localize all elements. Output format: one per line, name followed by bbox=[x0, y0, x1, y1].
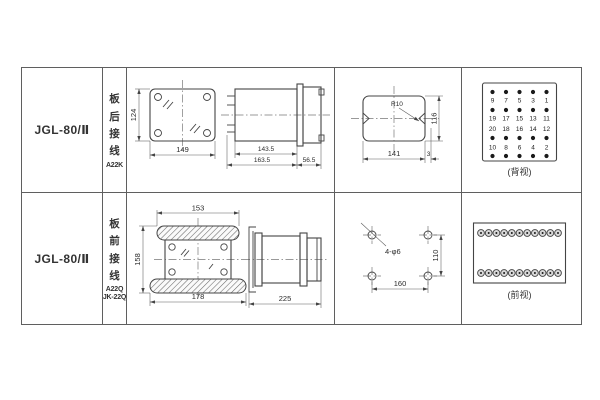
mount-hole bbox=[155, 130, 162, 137]
wiring-code: A22K bbox=[106, 162, 123, 169]
terminal-number: 12 bbox=[543, 126, 551, 133]
terminal-number: 2 bbox=[545, 145, 549, 152]
terminal-number: 19 bbox=[489, 116, 497, 123]
mount-view-drawing: 153 158 178 bbox=[133, 204, 246, 307]
dim-mount-width: 149 bbox=[176, 145, 189, 154]
mount-hole bbox=[204, 130, 211, 137]
terminal-number: 15 bbox=[516, 116, 524, 123]
terminal-number: 4 bbox=[531, 145, 535, 152]
dim-mount-height: 124 bbox=[129, 109, 138, 122]
terminal-number: 7 bbox=[504, 98, 508, 105]
model-label: JGL-80/Ⅱ bbox=[34, 252, 89, 266]
dimension-table: JGL-80/Ⅱ 板 后 接 线 A22K bbox=[21, 67, 582, 325]
dim-rear-depth: 56.5 bbox=[303, 157, 316, 164]
dim-hole-height: 110 bbox=[431, 250, 440, 262]
front-view-caption: (前视) bbox=[508, 289, 532, 300]
wiring-char: 线 bbox=[109, 143, 120, 160]
mount-hole bbox=[155, 94, 162, 101]
side-view-drawing: 225 bbox=[242, 227, 329, 308]
screw-row-bottom bbox=[478, 270, 562, 277]
screw-row-top bbox=[478, 230, 562, 237]
dim-height: 158 bbox=[133, 253, 142, 266]
hatch-mark bbox=[163, 100, 200, 133]
wiring-code: A22Q bbox=[106, 286, 124, 293]
mount-hole bbox=[169, 244, 175, 250]
wiring-char: 板 bbox=[109, 216, 120, 233]
wiring-char: 后 bbox=[109, 109, 120, 126]
mount-view-drawing: 124 149 bbox=[129, 80, 215, 159]
wiring-type-cell-row1: 板 后 接 线 A22K bbox=[103, 68, 127, 192]
wiring-char: 前 bbox=[109, 233, 120, 250]
terminal-number: 8 bbox=[504, 145, 508, 152]
main-drawings-cell-row2: 153 158 178 bbox=[127, 193, 335, 324]
terminal-number: 20 bbox=[489, 126, 497, 133]
terminal-strip-top bbox=[157, 226, 239, 240]
wiring-char: 线 bbox=[109, 268, 120, 285]
terminal-number: 10 bbox=[489, 145, 497, 152]
wiring-type-cell-row2: 板 前 接 线 A22Q JK-22Q bbox=[103, 193, 127, 324]
wiring-code: JK-22Q bbox=[103, 294, 126, 301]
terminal-number: 11 bbox=[543, 116, 550, 123]
side-view-drawing: 143.5 163.5 56.5 bbox=[221, 84, 330, 169]
model-cell-row2: JGL-80/Ⅱ bbox=[22, 193, 103, 324]
hatch-mark bbox=[181, 249, 213, 269]
terminal-front-view: (前视) bbox=[462, 193, 577, 324]
panel-cutout-drawing: R10 141 3 116 bbox=[335, 68, 462, 192]
dim-overall-depth: 163.5 bbox=[254, 157, 271, 164]
wiring-char: 板 bbox=[109, 91, 120, 108]
main-drawings-cell-row1: 124 149 bbox=[127, 68, 335, 192]
terminal-number: 14 bbox=[529, 126, 537, 133]
terminal-number: 3 bbox=[531, 98, 535, 105]
rear-view-cell: 9 7 5 3 1 19 17 15 13 11 20 18 16 14 12 bbox=[462, 68, 577, 192]
panel-cutout-cell-row1: R10 141 3 116 bbox=[335, 68, 462, 192]
dim-top-width: 153 bbox=[192, 204, 205, 213]
terminal-number: 16 bbox=[516, 126, 524, 133]
terminal-number: 18 bbox=[502, 126, 510, 133]
table-row-rear-wiring: JGL-80/Ⅱ 板 后 接 线 A22K bbox=[22, 68, 581, 193]
dim-overall-depth: 225 bbox=[279, 294, 292, 303]
terminal-number: 1 bbox=[545, 98, 549, 105]
front-view-cell: (前视) bbox=[462, 193, 577, 324]
dim-hole-spec: 4-φ6 bbox=[385, 247, 401, 256]
terminal-number: 17 bbox=[502, 116, 510, 123]
dim-hole-width: 160 bbox=[394, 279, 407, 288]
drill-plan-cell: 4-φ6 110 160 bbox=[335, 193, 462, 324]
terminal-number: 13 bbox=[529, 116, 537, 123]
table-row-front-wiring: JGL-80/Ⅱ 板 前 接 线 A22Q JK-22Q bbox=[22, 193, 581, 324]
terminal-rear-view: 9 7 5 3 1 19 17 15 13 11 20 18 16 14 12 bbox=[462, 68, 577, 192]
terminal-number: 9 bbox=[491, 98, 495, 105]
dim-cutout-offset: 3 bbox=[427, 151, 431, 158]
mount-hole bbox=[204, 94, 211, 101]
radius-leader bbox=[399, 108, 419, 121]
mount-hole bbox=[221, 244, 227, 250]
drill-plan-drawing: 4-φ6 110 160 bbox=[335, 193, 462, 324]
terminal-strip-bottom bbox=[150, 279, 246, 293]
dim-cutout-width: 141 bbox=[388, 149, 401, 158]
dim-bottom-width: 178 bbox=[192, 292, 205, 301]
holes-leader bbox=[361, 223, 386, 246]
model-label: JGL-80/Ⅱ bbox=[34, 123, 89, 137]
dim-cutout-height: 116 bbox=[430, 113, 439, 125]
wiring-char: 接 bbox=[109, 126, 120, 143]
mount-hole bbox=[169, 269, 175, 275]
front-version-drawings: 153 158 178 bbox=[127, 193, 335, 324]
rear-view-caption: (背视) bbox=[508, 166, 532, 177]
model-cell-row1: JGL-80/Ⅱ bbox=[22, 68, 103, 192]
dim-case-depth: 143.5 bbox=[258, 146, 275, 153]
dim-corner-radius: R10 bbox=[391, 101, 403, 108]
wiring-char: 接 bbox=[109, 251, 120, 268]
mount-hole bbox=[221, 269, 227, 275]
terminal-number: 5 bbox=[518, 98, 522, 105]
terminal-number: 6 bbox=[518, 145, 522, 152]
drill-hole bbox=[363, 226, 381, 244]
rear-version-drawings: 124 149 bbox=[127, 68, 335, 192]
